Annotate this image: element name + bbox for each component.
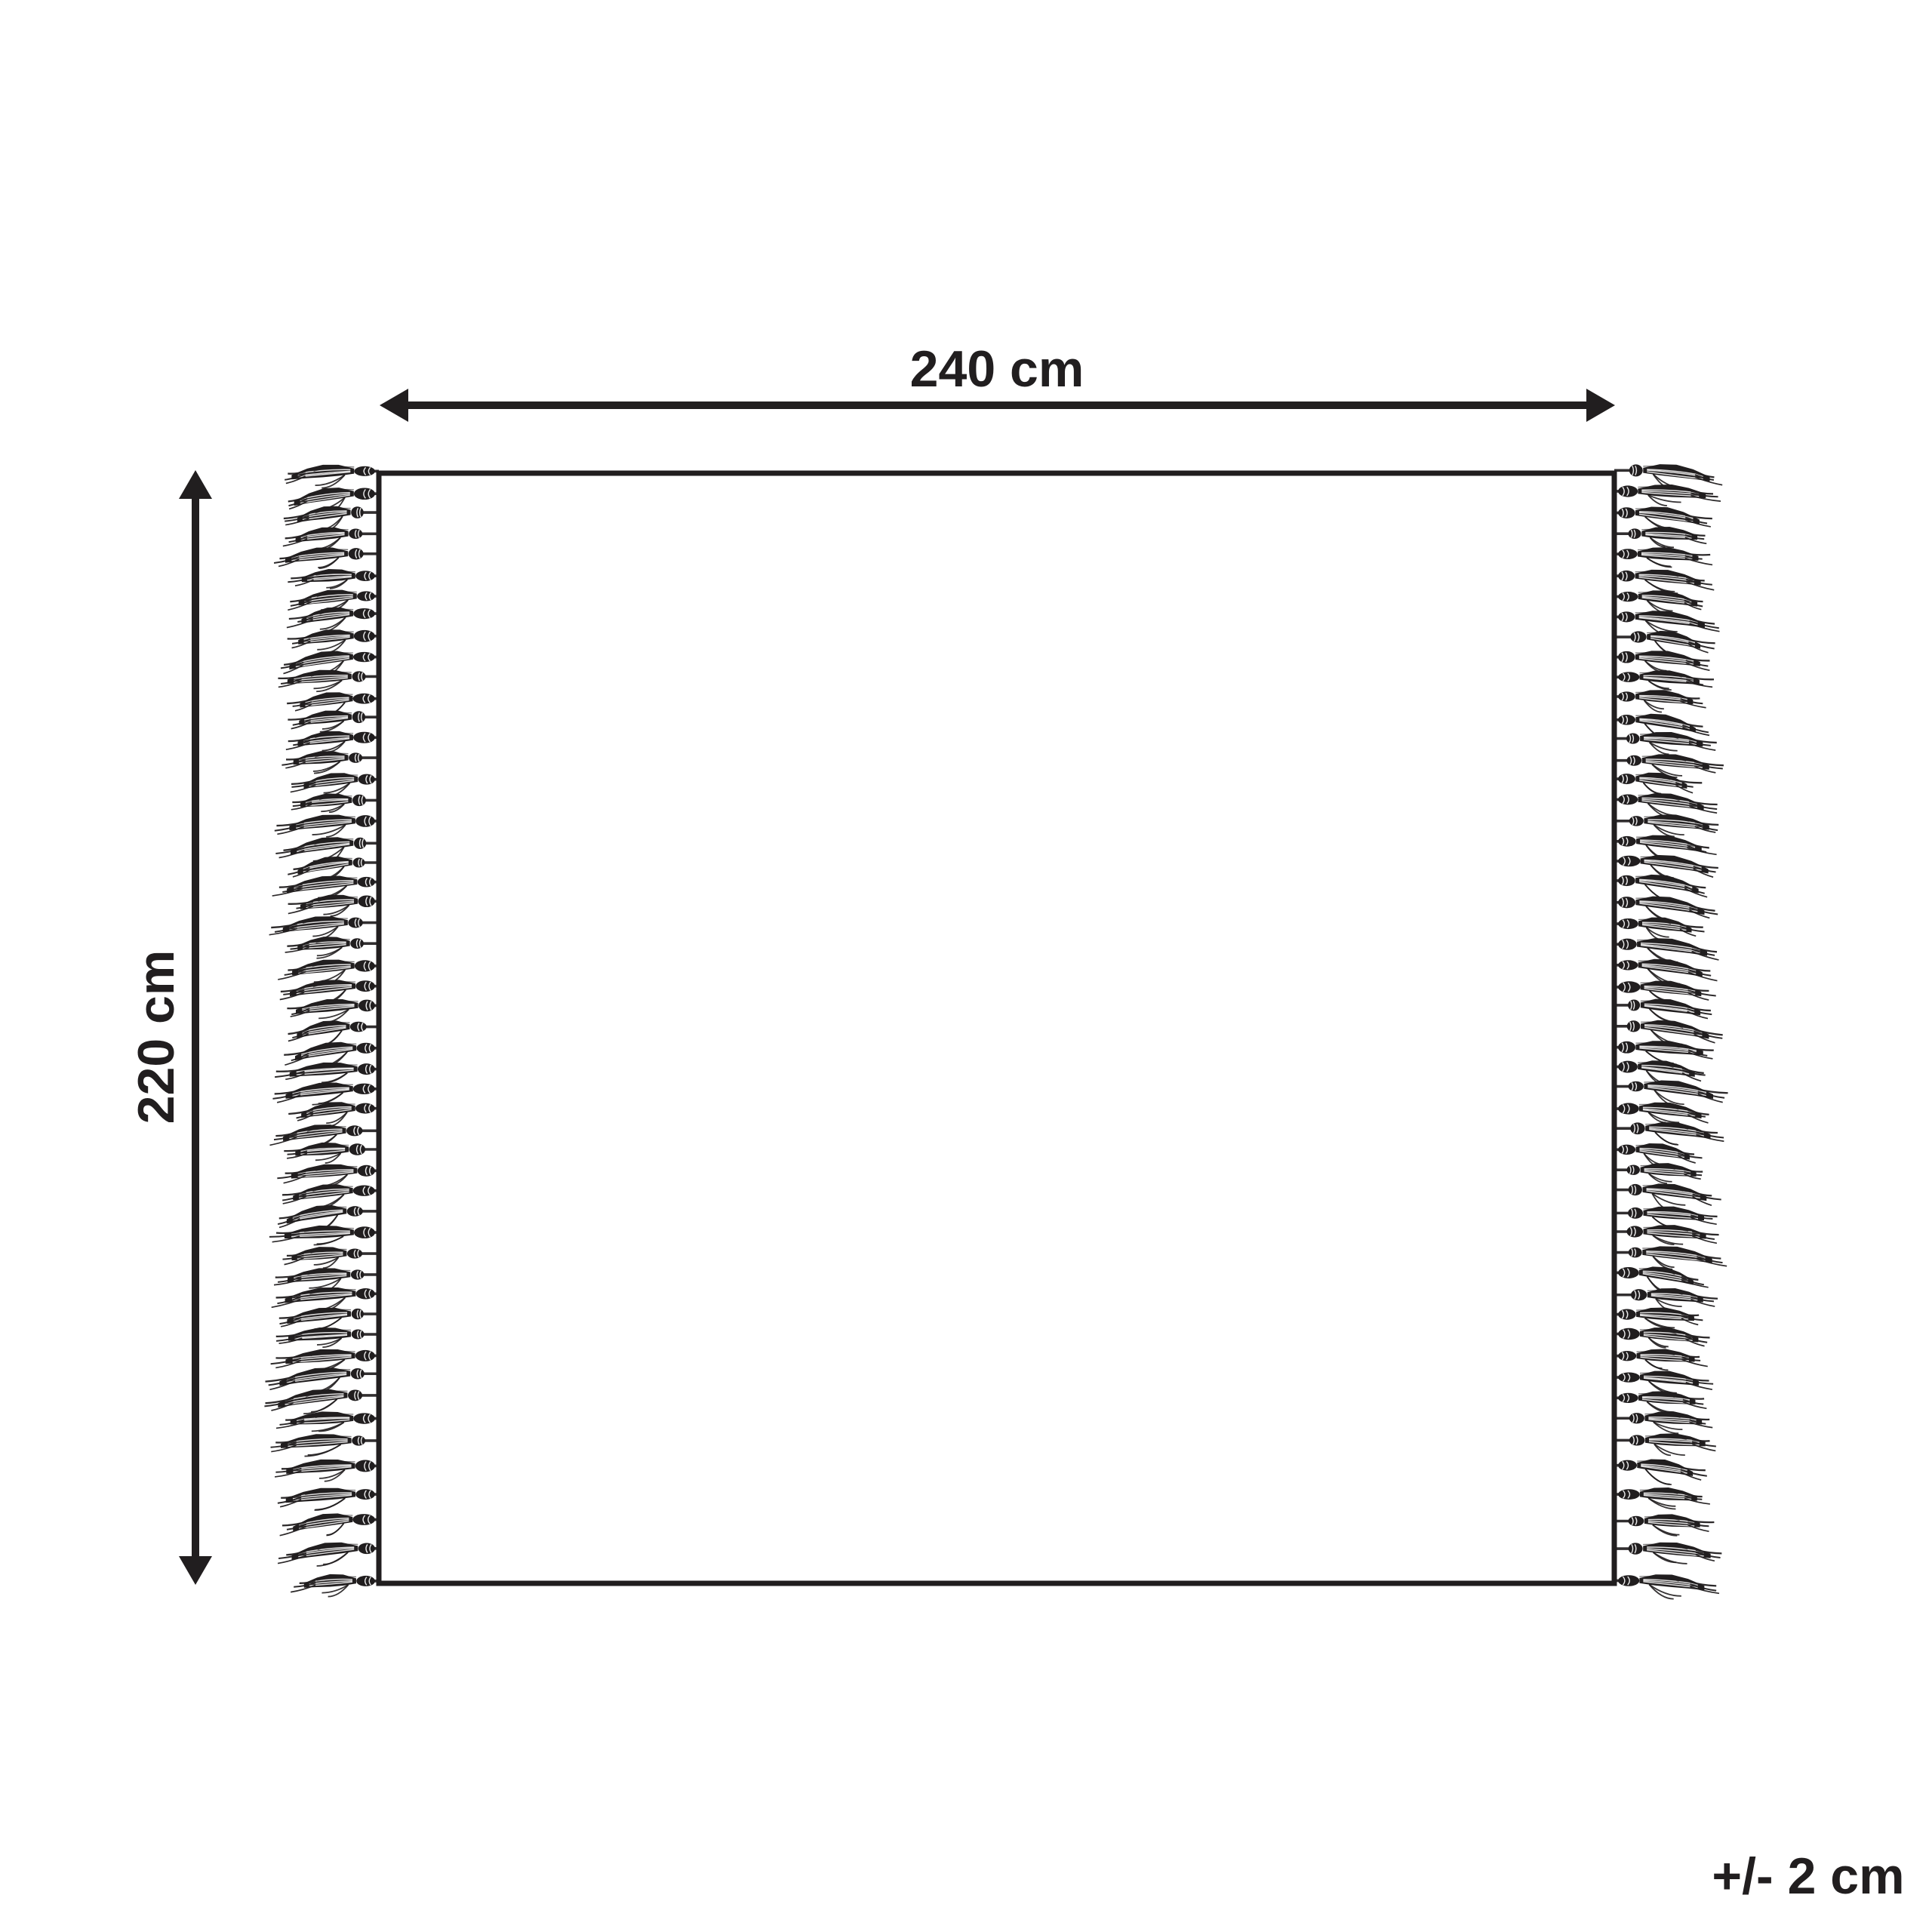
tassel xyxy=(291,773,379,797)
tassel xyxy=(1614,897,1718,921)
arrowhead-left-icon xyxy=(380,389,408,422)
tassel xyxy=(275,815,379,837)
tassel xyxy=(1614,1459,1707,1484)
tassel xyxy=(269,1226,379,1245)
tassel xyxy=(1614,670,1714,690)
tassel xyxy=(278,1543,379,1566)
tassel xyxy=(1614,793,1718,817)
tassel xyxy=(275,1460,379,1481)
tolerance-label: +/- 2 cm xyxy=(1712,1850,1904,1902)
tassel xyxy=(1614,1327,1710,1348)
tassel xyxy=(1614,1543,1721,1564)
tassel xyxy=(288,711,379,732)
height-dimension-label: 220 cm xyxy=(131,950,182,1124)
tassel xyxy=(288,629,379,652)
tassel xyxy=(277,1164,379,1186)
tassel xyxy=(1614,1288,1718,1310)
tassel xyxy=(272,876,379,898)
tassel xyxy=(280,1513,379,1535)
tassel xyxy=(264,1389,379,1414)
arrowhead-up-icon xyxy=(179,470,212,499)
tassel xyxy=(1614,1183,1721,1210)
tassel xyxy=(286,731,379,752)
arrowhead-down-icon xyxy=(179,1556,212,1585)
tassel xyxy=(282,1247,379,1268)
tassel xyxy=(1614,651,1710,672)
tassel xyxy=(1614,754,1724,777)
tassel xyxy=(276,1411,379,1431)
tassel xyxy=(269,916,379,939)
tassel xyxy=(1614,590,1703,614)
tassel xyxy=(284,1143,379,1163)
tassel xyxy=(1614,1371,1713,1395)
tassel xyxy=(274,547,379,568)
tassel xyxy=(291,793,379,812)
tassel xyxy=(285,937,379,958)
tassel xyxy=(1614,918,1704,940)
dimension-diagram: 240 cm 220 cm +/- 2 cm xyxy=(0,0,1932,1932)
tassel xyxy=(279,1308,379,1331)
tassel xyxy=(266,1367,379,1392)
tassel xyxy=(1614,1433,1716,1455)
tassel xyxy=(1614,485,1721,506)
left-fringe xyxy=(264,465,379,1597)
tassel xyxy=(1614,1411,1712,1433)
tassel xyxy=(272,1083,379,1105)
tassel xyxy=(278,1488,379,1510)
tassel xyxy=(1614,1103,1709,1123)
tassel xyxy=(1614,814,1718,836)
tassel xyxy=(1614,1349,1708,1370)
tassel xyxy=(1614,1574,1719,1598)
tassel xyxy=(1614,1308,1703,1328)
tassel xyxy=(1614,981,1716,1002)
tassel xyxy=(281,751,379,773)
tassel xyxy=(287,999,379,1023)
tassel xyxy=(1614,690,1706,712)
tassel xyxy=(283,528,379,550)
tassel xyxy=(1614,1246,1727,1269)
tassel xyxy=(288,857,379,879)
tassel xyxy=(1614,938,1718,963)
tassel xyxy=(276,1327,379,1347)
tassel xyxy=(288,569,379,589)
tassel xyxy=(1614,527,1706,547)
arrowhead-right-icon xyxy=(1586,389,1615,422)
tassel xyxy=(282,1184,379,1208)
tassel xyxy=(275,1063,379,1083)
tassel xyxy=(1614,1391,1706,1412)
tassel xyxy=(1614,1080,1728,1106)
tassel xyxy=(1614,773,1702,794)
tassel xyxy=(1614,1514,1714,1535)
tassel xyxy=(1614,1122,1724,1145)
tassel xyxy=(1614,570,1714,593)
tassel xyxy=(1614,1225,1719,1244)
tassel xyxy=(1614,1207,1718,1229)
tassel xyxy=(272,1287,379,1311)
width-dimension-label: 240 cm xyxy=(910,343,1084,395)
tassel xyxy=(291,1574,379,1597)
tassel xyxy=(288,590,379,611)
tassel xyxy=(288,1102,379,1126)
right-fringe xyxy=(1614,464,1728,1598)
tassel xyxy=(1614,732,1717,754)
tassel xyxy=(1614,1487,1710,1509)
tassel xyxy=(288,895,379,916)
tassel xyxy=(1614,1163,1703,1183)
tassel xyxy=(284,506,379,530)
tassel xyxy=(285,465,379,488)
tassel xyxy=(288,1020,379,1045)
tassel xyxy=(278,670,379,692)
diagram-canvas xyxy=(0,0,1932,1932)
tassel xyxy=(1614,547,1712,567)
tassel xyxy=(271,1434,379,1456)
tassel xyxy=(287,608,379,632)
blanket-outline xyxy=(379,473,1614,1583)
tassel xyxy=(1614,999,1712,1022)
